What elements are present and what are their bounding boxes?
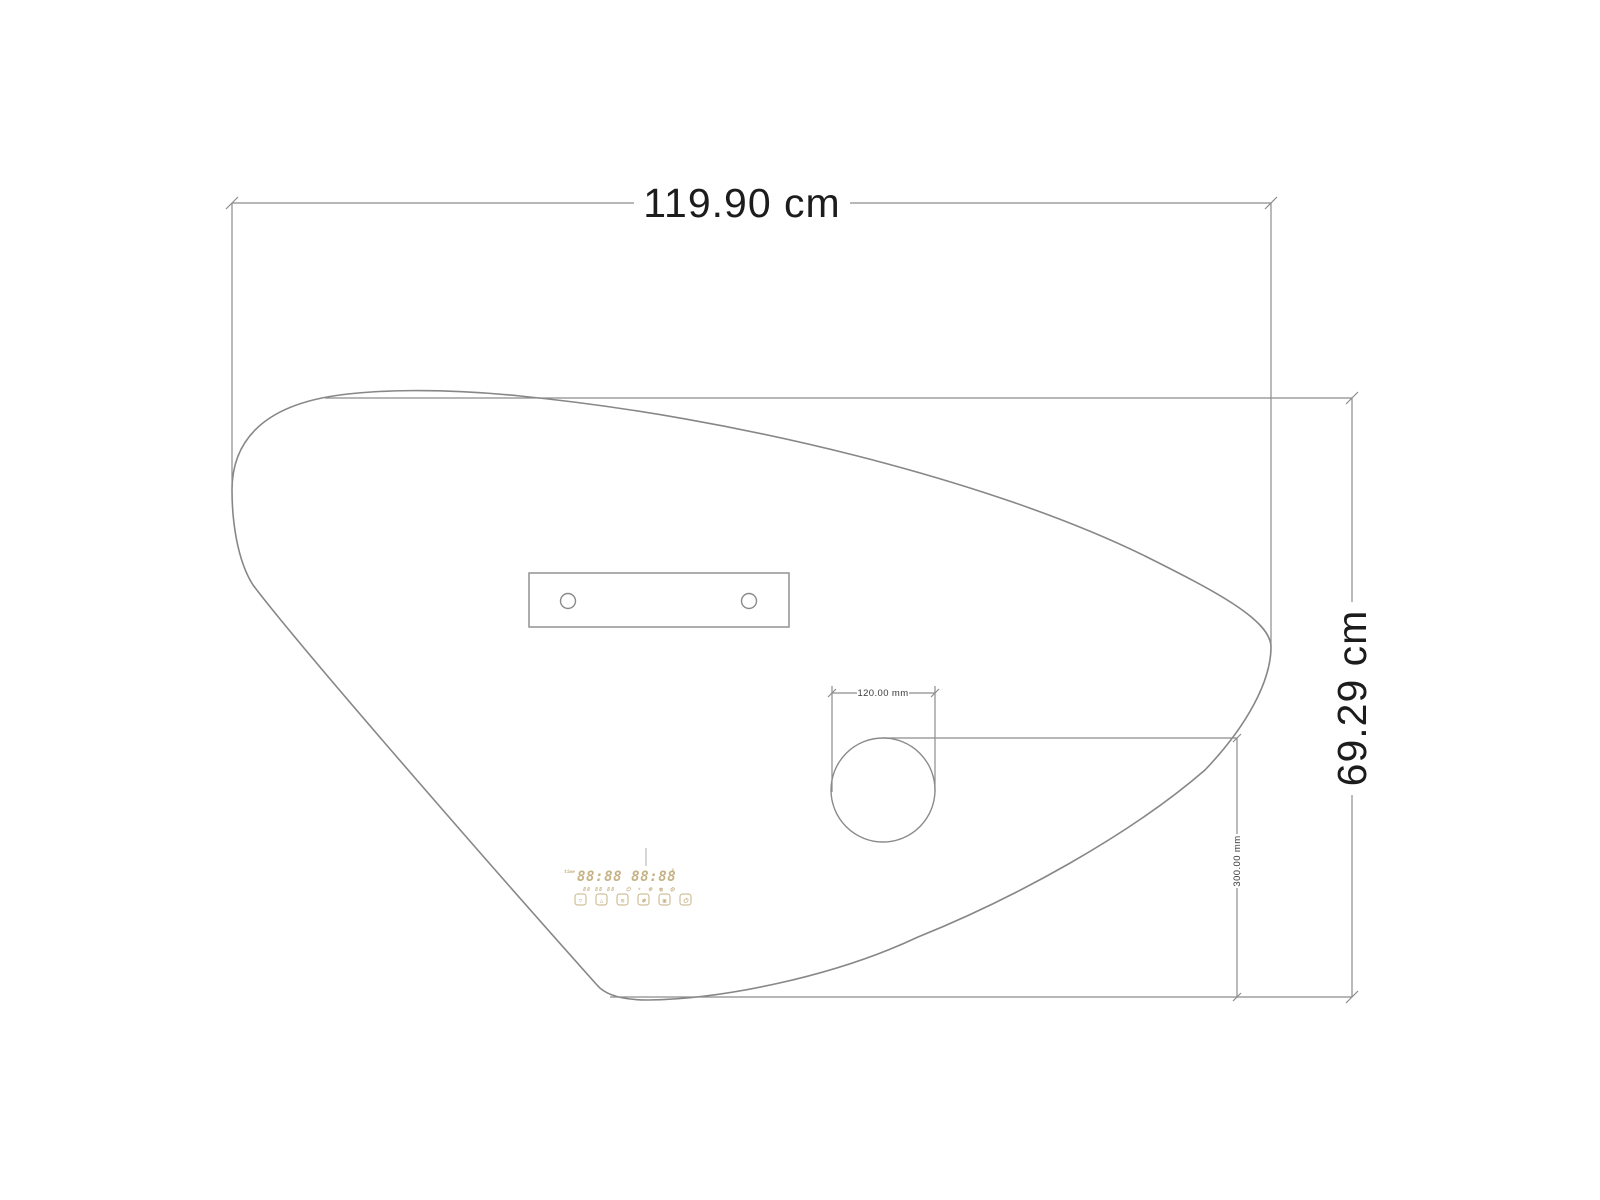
magnifier-circle — [831, 738, 935, 842]
touch-button-2-icon: △ — [600, 898, 604, 905]
status-row-left: 88 88 88 — [583, 887, 615, 893]
touch-button-1-icon: ▽ — [579, 898, 583, 905]
touch-button-3-icon: ≋ — [621, 898, 625, 905]
led-clock-display: 88:88 88:88 — [577, 869, 676, 885]
panel-time-tag: time — [564, 869, 575, 875]
degree-mark: ° — [671, 868, 675, 875]
mirror-technical-drawing: 119.90 cm 69.29 cm 120.00 mm — [0, 0, 1600, 1200]
offset-dimension-label: 300.00 mm — [1232, 835, 1243, 886]
width-dimension-label: 119.90 cm — [643, 180, 840, 226]
touch-button-5-icon: ▣ — [663, 898, 667, 905]
magnifier-diameter-label: 120.00 mm — [857, 688, 908, 699]
height-dimension-label: 69.29 cm — [1329, 610, 1375, 787]
drawing-canvas: 119.90 cm 69.29 cm 120.00 mm — [0, 0, 1600, 1200]
mirror-outline — [232, 391, 1271, 1000]
status-row-icons: ⏻ ☀ ❄ ▦ ⚙ — [626, 886, 676, 893]
bracket-hole-left — [561, 594, 576, 609]
bracket-hole-right — [742, 594, 757, 609]
